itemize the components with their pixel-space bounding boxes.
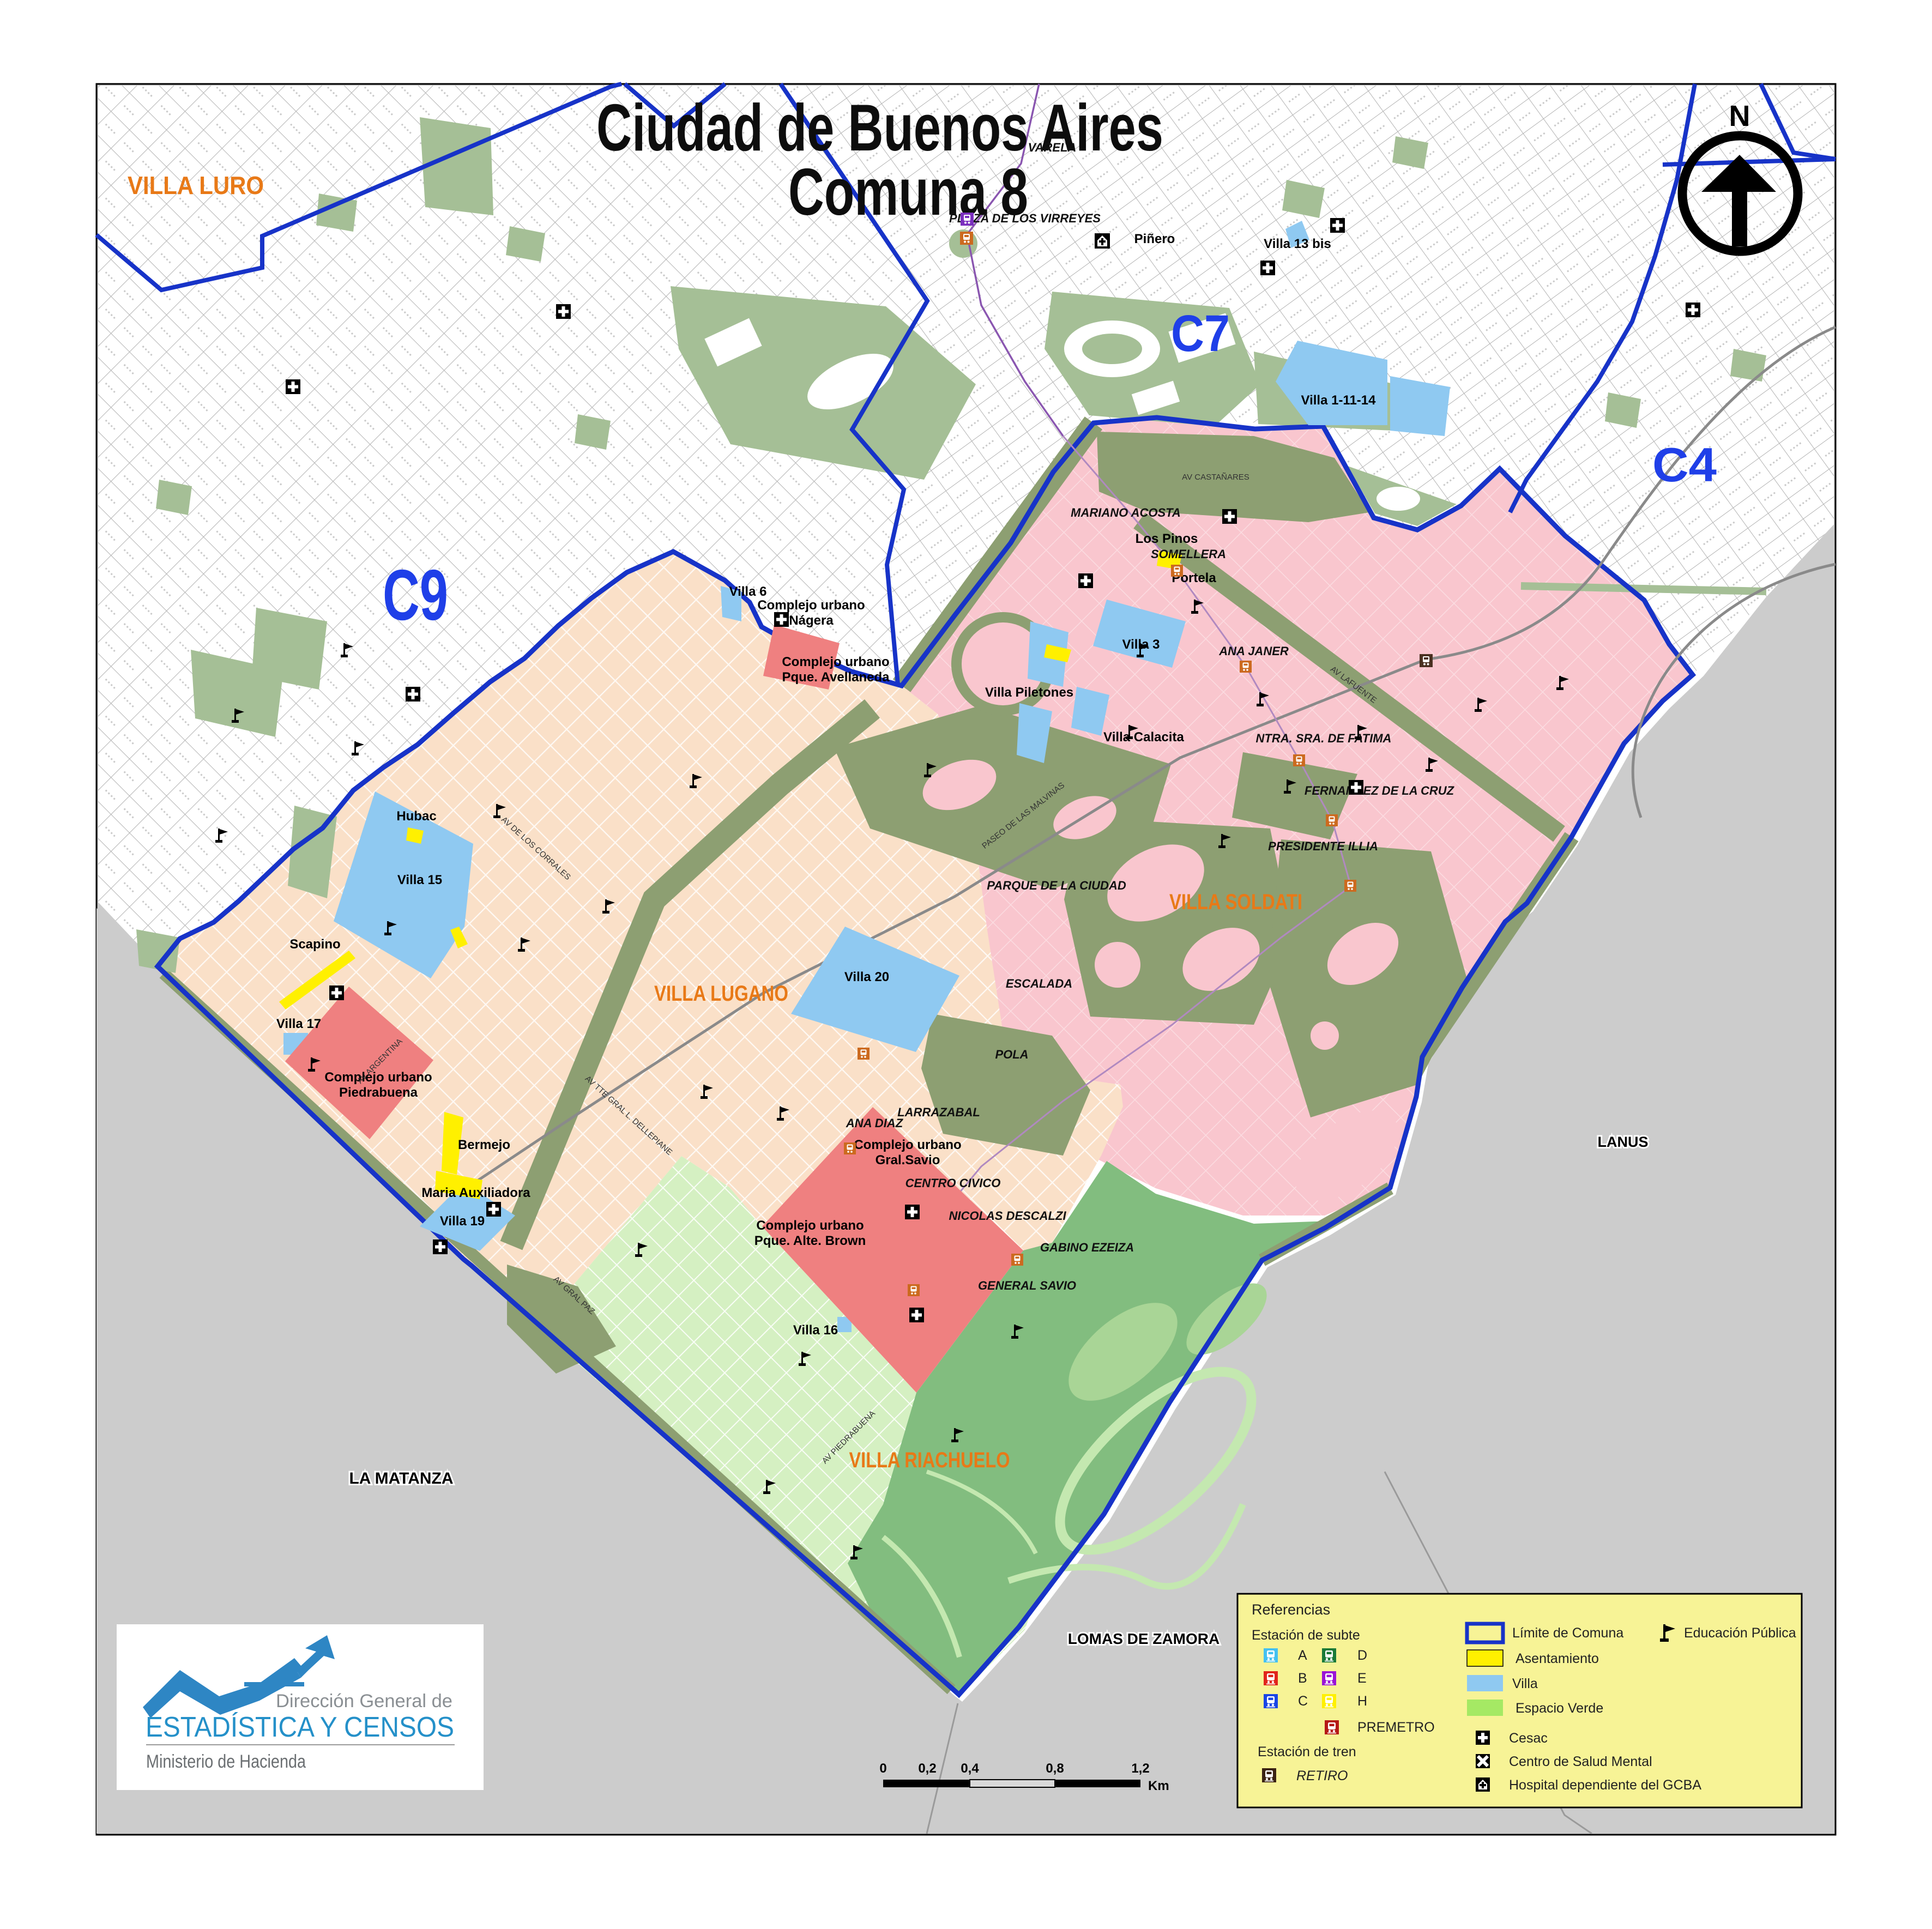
svg-text:Villa 13 bis: Villa 13 bis <box>1264 237 1331 251</box>
svg-text:VILLA LUGANO: VILLA LUGANO <box>654 982 788 1006</box>
svg-text:LOMAS DE ZAMORA: LOMAS DE ZAMORA <box>1068 1630 1219 1647</box>
svg-text:Estación de subte: Estación de subte <box>1252 1628 1360 1643</box>
svg-text:Complejo urbano: Complejo urbano <box>756 1218 864 1233</box>
svg-text:1,2: 1,2 <box>1131 1761 1149 1776</box>
svg-text:Villa 19: Villa 19 <box>440 1214 485 1229</box>
svg-text:Maria Auxiliadora: Maria Auxiliadora <box>421 1186 530 1200</box>
svg-text:Referencias: Referencias <box>1252 1601 1330 1618</box>
svg-text:Villa 20: Villa 20 <box>844 970 889 984</box>
svg-text:CENTRO CIVICO: CENTRO CIVICO <box>905 1176 1001 1190</box>
svg-text:0,8: 0,8 <box>1046 1761 1064 1776</box>
svg-text:Límite de Comuna: Límite de Comuna <box>1512 1625 1623 1641</box>
svg-text:Villa 16: Villa 16 <box>793 1323 838 1338</box>
svg-text:Educación Pública: Educación Pública <box>1684 1625 1796 1641</box>
svg-text:Villa 17: Villa 17 <box>276 1017 321 1031</box>
svg-text:C7: C7 <box>1171 305 1230 362</box>
svg-text:MARIANO ACOSTA: MARIANO ACOSTA <box>1071 506 1181 519</box>
svg-text:Complejo urbano: Complejo urbano <box>782 655 889 669</box>
svg-text:A: A <box>1298 1648 1307 1663</box>
svg-text:GABINO EZEIZA: GABINO EZEIZA <box>1040 1241 1134 1254</box>
svg-text:AV CASTAÑARES: AV CASTAÑARES <box>1182 473 1249 482</box>
svg-text:Complejo urbano: Complejo urbano <box>324 1070 432 1085</box>
svg-text:Los Pinos: Los Pinos <box>1136 531 1198 546</box>
svg-text:LA MATANZA: LA MATANZA <box>349 1470 453 1487</box>
svg-text:Pque. Avellaneda: Pque. Avellaneda <box>782 670 890 685</box>
svg-text:ANA JANER: ANA JANER <box>1218 644 1289 658</box>
svg-text:Villa 6: Villa 6 <box>729 584 767 599</box>
svg-text:Piñero: Piñero <box>1134 232 1175 246</box>
svg-text:Km: Km <box>1148 1779 1169 1793</box>
svg-text:GENERAL SAVIO: GENERAL SAVIO <box>978 1279 1076 1292</box>
svg-text:SOMELLERA: SOMELLERA <box>1151 547 1226 561</box>
svg-text:Villa Calacita: Villa Calacita <box>1103 730 1184 745</box>
svg-text:0: 0 <box>879 1761 886 1776</box>
svg-text:Complejo urbano: Complejo urbano <box>854 1138 961 1152</box>
svg-text:Asentamiento: Asentamiento <box>1516 1651 1599 1666</box>
svg-text:E: E <box>1357 1671 1367 1686</box>
svg-text:VILLA SOLDATI: VILLA SOLDATI <box>1169 890 1302 914</box>
svg-text:PRESIDENTE ILLIA: PRESIDENTE ILLIA <box>1268 839 1378 853</box>
svg-text:Villa: Villa <box>1512 1676 1538 1691</box>
svg-text:Complejo urbano: Complejo urbano <box>757 598 865 613</box>
svg-text:FERNANDEZ DE LA CRUZ: FERNANDEZ DE LA CRUZ <box>1305 784 1455 797</box>
svg-text:Pque. Alte. Brown: Pque. Alte. Brown <box>754 1233 866 1248</box>
svg-text:Cesac: Cesac <box>1509 1731 1548 1746</box>
svg-text:Villa Piletones: Villa Piletones <box>985 685 1073 700</box>
svg-text:Scapino: Scapino <box>289 937 340 952</box>
svg-text:Hospital dependiente del GCBA: Hospital dependiente del GCBA <box>1509 1777 1701 1793</box>
svg-text:Ministerio de Hacienda: Ministerio de Hacienda <box>146 1751 306 1772</box>
svg-text:Centro de Salud Mental: Centro de Salud Mental <box>1509 1754 1652 1769</box>
svg-text:B: B <box>1298 1671 1307 1686</box>
svg-text:NICOLAS DESCALZI: NICOLAS DESCALZI <box>949 1209 1066 1223</box>
svg-text:Villa 15: Villa 15 <box>397 873 442 887</box>
svg-text:C9: C9 <box>383 555 448 635</box>
svg-text:Estación de tren: Estación de tren <box>1258 1744 1356 1759</box>
svg-text:0,4: 0,4 <box>961 1761 979 1776</box>
svg-text:D: D <box>1357 1648 1367 1663</box>
svg-text:Ciudad de Buenos Aires: Ciudad de Buenos Aires <box>596 90 1163 165</box>
svg-text:NTRA. SRA. DE FATIMA: NTRA. SRA. DE FATIMA <box>1256 731 1392 745</box>
svg-text:C4: C4 <box>1652 438 1717 492</box>
svg-text:0,2: 0,2 <box>918 1761 936 1776</box>
svg-text:Gral.Savio: Gral.Savio <box>876 1153 940 1168</box>
svg-text:C: C <box>1298 1694 1308 1709</box>
svg-text:POLA: POLA <box>995 1048 1028 1061</box>
svg-text:Bermejo: Bermejo <box>458 1138 510 1152</box>
svg-text:H: H <box>1357 1694 1367 1709</box>
svg-text:VARELA: VARELA <box>1028 141 1077 154</box>
svg-text:LANUS: LANUS <box>1598 1134 1649 1150</box>
svg-text:PARQUE DE LA CIUDAD: PARQUE DE LA CIUDAD <box>987 879 1126 892</box>
svg-text:ANA DIAZ: ANA DIAZ <box>846 1116 904 1130</box>
svg-text:VILLA LURO: VILLA LURO <box>128 171 264 199</box>
svg-text:Dirección General de: Dirección General de <box>276 1691 452 1712</box>
svg-text:N: N <box>1729 100 1750 132</box>
svg-text:VILLA RIACHUELO: VILLA RIACHUELO <box>849 1448 1010 1472</box>
svg-text:Espacio Verde: Espacio Verde <box>1516 1701 1603 1716</box>
svg-text:ESCALADA: ESCALADA <box>1006 977 1072 990</box>
svg-text:LARRAZABAL: LARRAZABAL <box>897 1105 980 1119</box>
svg-text:ESTADÍSTICA Y CENSOS: ESTADÍSTICA Y CENSOS <box>146 1712 454 1743</box>
svg-text:Nágera: Nágera <box>789 613 834 628</box>
svg-text:Piedrabuena: Piedrabuena <box>339 1085 418 1100</box>
svg-text:Villa 1-11-14: Villa 1-11-14 <box>1301 393 1376 408</box>
svg-text:RETIRO: RETIRO <box>1296 1768 1348 1783</box>
svg-text:Hubac: Hubac <box>396 809 436 824</box>
svg-text:PREMETRO: PREMETRO <box>1357 1720 1435 1735</box>
